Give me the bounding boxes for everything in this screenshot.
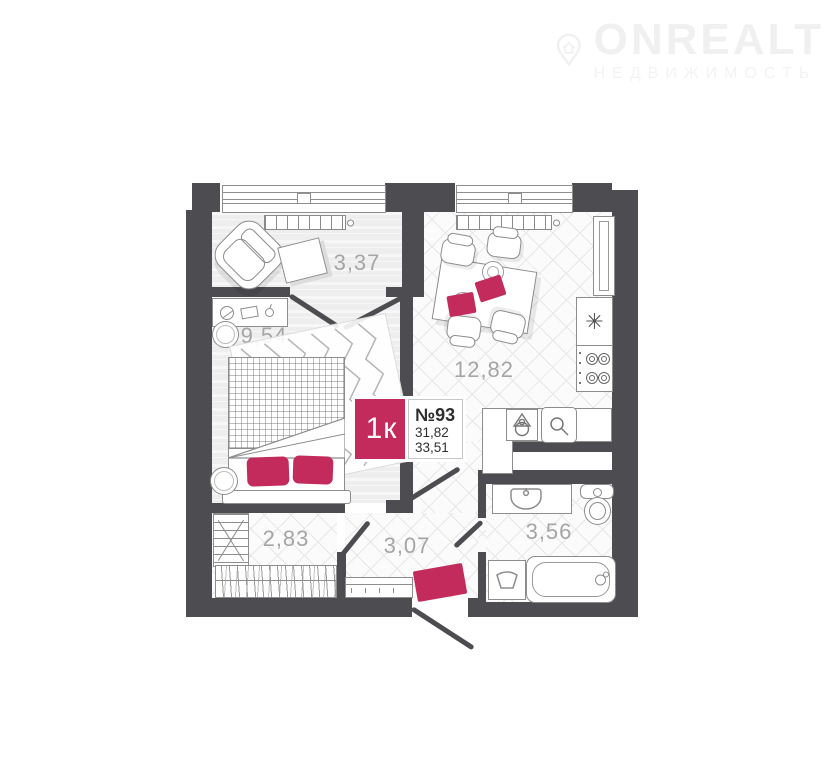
fridge-icon: ✳ bbox=[576, 297, 613, 346]
wall-kitchen-bottom bbox=[508, 442, 612, 452]
plant-icon bbox=[220, 306, 234, 320]
floor-plan-canvas: ONREALT НЕДВИЖИМОСТЬ bbox=[0, 0, 827, 777]
shoe-bench-icon bbox=[345, 577, 413, 598]
unit-info-badge: №93 31,82 33,51 bbox=[408, 399, 463, 459]
wall-bottom bbox=[186, 598, 412, 617]
unit-number: №93 bbox=[415, 405, 462, 425]
wall-top-middle-pier bbox=[385, 183, 455, 212]
chair-icon bbox=[486, 231, 523, 260]
stove-knobs bbox=[579, 352, 581, 385]
tall-cabinet-icon bbox=[593, 216, 615, 296]
window-kitchen bbox=[456, 185, 573, 213]
unit-total-area: 33,51 bbox=[415, 440, 462, 455]
radiator-loggia-icon bbox=[264, 215, 346, 230]
bathroom-sink-icon bbox=[507, 486, 545, 512]
bed-pillow-icon bbox=[247, 456, 290, 486]
room-area-label-bathroom: 3,56 bbox=[526, 519, 573, 545]
brand-text-block: ONREALT НЕДВИЖИМОСТЬ bbox=[594, 18, 824, 83]
wall-left bbox=[186, 210, 212, 617]
wall-top-left-pier bbox=[192, 183, 220, 212]
vase-icon bbox=[265, 308, 274, 317]
room-area-label-hallway: 3,07 bbox=[384, 533, 431, 559]
brand-watermark: ONREALT НЕДВИЖИМОСТЬ bbox=[556, 6, 824, 94]
bathtub-icon bbox=[526, 556, 616, 603]
wall-bathroom-bottom bbox=[478, 602, 612, 617]
toilet-bowl-icon bbox=[584, 497, 611, 525]
bed-pillow-icon bbox=[293, 455, 334, 484]
wall-top-right-pier bbox=[572, 183, 612, 212]
wall-bottom-nub bbox=[468, 598, 478, 617]
wall-bathroom-left-lower bbox=[478, 552, 486, 602]
unit-living-area: 31,82 bbox=[415, 425, 462, 440]
room-area-label-wardrobe: 2,83 bbox=[263, 526, 310, 552]
cooktop-pan-icon bbox=[541, 407, 577, 443]
clothes-rail-icon bbox=[215, 565, 337, 598]
door-entrance-leaf bbox=[411, 606, 475, 650]
bathtub-tap-icon bbox=[595, 574, 606, 585]
laundry-basket-icon bbox=[488, 560, 526, 600]
chair-icon bbox=[446, 314, 483, 343]
photo-frame-icon bbox=[240, 306, 259, 320]
bed-folded-sheet bbox=[228, 408, 345, 460]
pouf-icon bbox=[210, 467, 238, 495]
wall-bedroom-wardrobe bbox=[210, 503, 345, 513]
wall-bathroom-left-upper bbox=[478, 484, 486, 518]
brand-subtitle: НЕДВИЖИМОСТЬ bbox=[594, 65, 824, 83]
stove-burners bbox=[586, 350, 609, 387]
wall-bedroom-kitchen bbox=[400, 294, 413, 400]
unit-rooms-label: 1к bbox=[366, 412, 398, 446]
brand-name: ONREALT bbox=[594, 18, 824, 62]
stove-icon bbox=[576, 345, 613, 392]
unit-rooms-badge: 1к bbox=[355, 399, 408, 459]
house-pin-icon bbox=[556, 9, 582, 91]
room-area-label-kitchen: 12,82 bbox=[454, 357, 514, 383]
snowflake-glyph: ✳ bbox=[585, 309, 603, 335]
wall-right bbox=[612, 190, 638, 617]
window-handle bbox=[297, 193, 311, 204]
room-area-label-loggia: 3,37 bbox=[334, 250, 381, 276]
window-handle bbox=[508, 193, 522, 204]
window-loggia bbox=[222, 185, 386, 213]
bed-headboard bbox=[222, 490, 351, 504]
wall-loggia-kitchen bbox=[402, 212, 424, 294]
kitchen-sink-icon bbox=[506, 409, 538, 441]
wardrobe-shelves-icon bbox=[213, 513, 249, 567]
bathroom-vanity bbox=[492, 484, 572, 514]
